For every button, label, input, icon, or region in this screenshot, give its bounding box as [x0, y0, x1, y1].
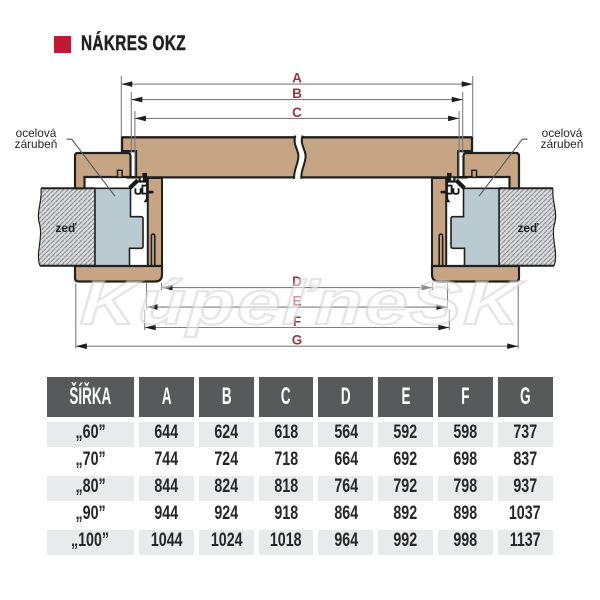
svg-text:A: A [292, 71, 302, 86]
svg-text:zeď: zeď [518, 221, 539, 235]
svg-text:C: C [292, 105, 302, 120]
svg-text:zeď: zeď [56, 221, 77, 235]
svg-text:B: B [292, 86, 302, 101]
